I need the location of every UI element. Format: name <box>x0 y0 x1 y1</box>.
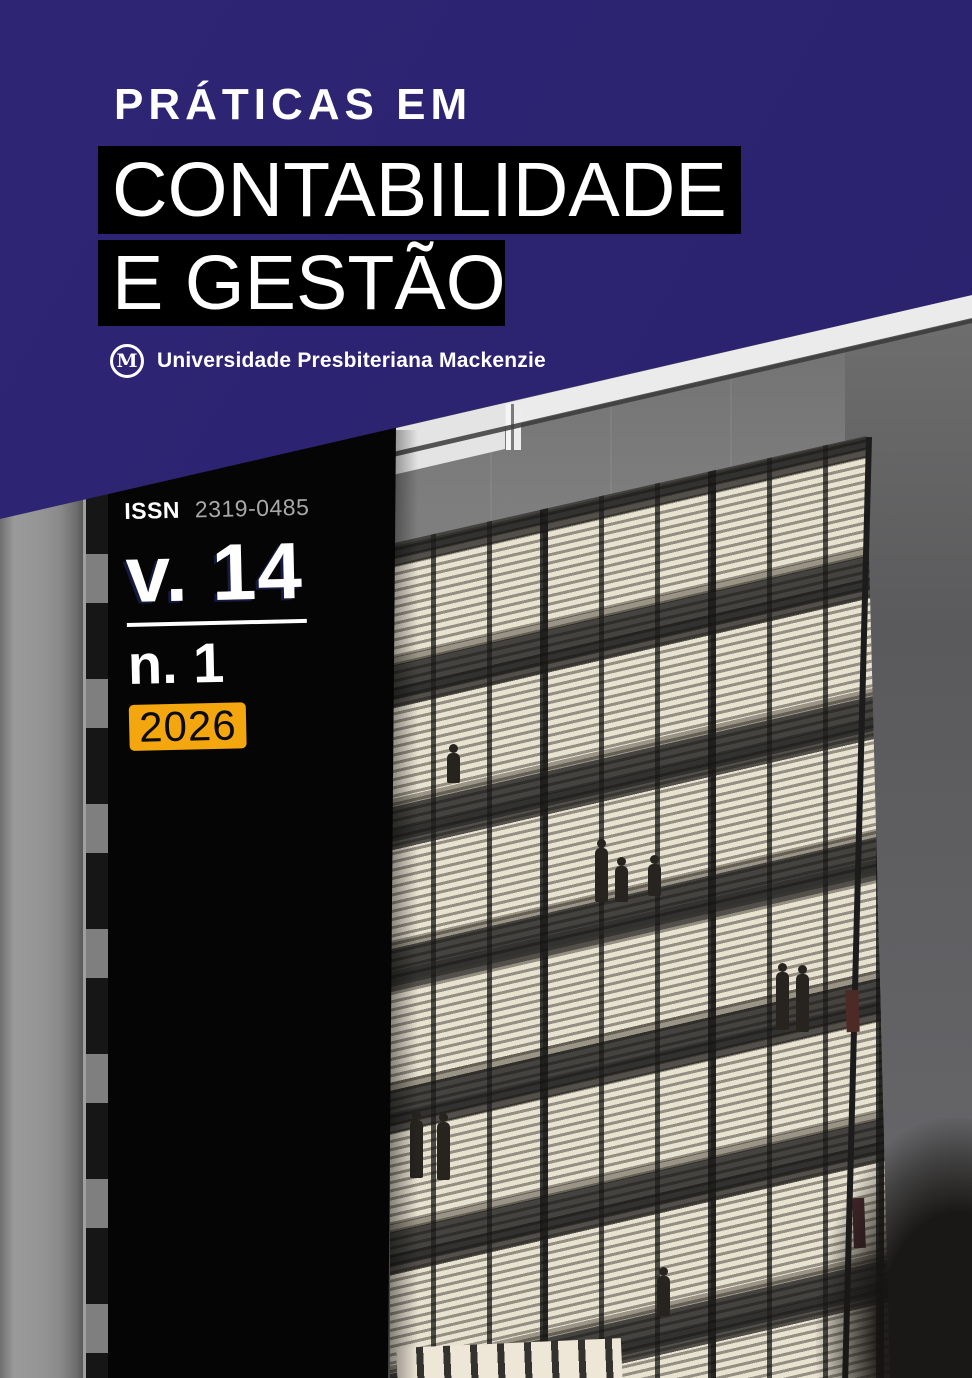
journal-cover: ISSN 2319-0485 v. 14 n. 1 2026 PRÁTICAS … <box>0 0 972 1378</box>
red-accent <box>845 990 859 1032</box>
issue-number: n. 1 <box>127 631 388 693</box>
issue-panel-content: ISSN 2319-0485 v. 14 n. 1 2026 <box>124 492 390 751</box>
person-silhouette <box>447 753 460 783</box>
publisher-name: Universidade Presbiteriana Mackenzie <box>157 349 546 373</box>
side-window-strip <box>83 478 110 1378</box>
tree-silhouette <box>816 1118 972 1378</box>
volume-number: v. 14 <box>125 531 387 613</box>
issn-number: 2319-0485 <box>195 494 310 523</box>
person-silhouette <box>776 972 789 1030</box>
journal-title-line1: CONTABILIDADE <box>98 146 741 234</box>
journal-title-line2-text: E GESTÃO <box>112 239 506 328</box>
volume-divider-rule <box>127 619 307 627</box>
person-silhouette <box>796 974 809 1032</box>
issn-label: ISSN <box>124 497 180 524</box>
year-badge: 2026 <box>129 702 247 751</box>
journal-pretitle: PRÁTICAS EM <box>114 80 472 130</box>
concrete-column-left <box>0 430 83 1378</box>
journal-title-line1-text: CONTABILIDADE <box>112 146 727 235</box>
journal-title-line2: E GESTÃO <box>98 240 505 326</box>
person-silhouette <box>595 848 608 902</box>
issn-line: ISSN 2319-0485 <box>124 492 385 525</box>
person-silhouette <box>648 864 661 896</box>
person-silhouette <box>657 1276 670 1316</box>
person-silhouette <box>437 1122 450 1180</box>
mackenzie-logo-icon: M <box>110 344 144 378</box>
person-silhouette <box>615 866 628 902</box>
publisher-row: M Universidade Presbiteriana Mackenzie <box>110 344 546 378</box>
mackenzie-logo-letter: M <box>116 352 137 371</box>
